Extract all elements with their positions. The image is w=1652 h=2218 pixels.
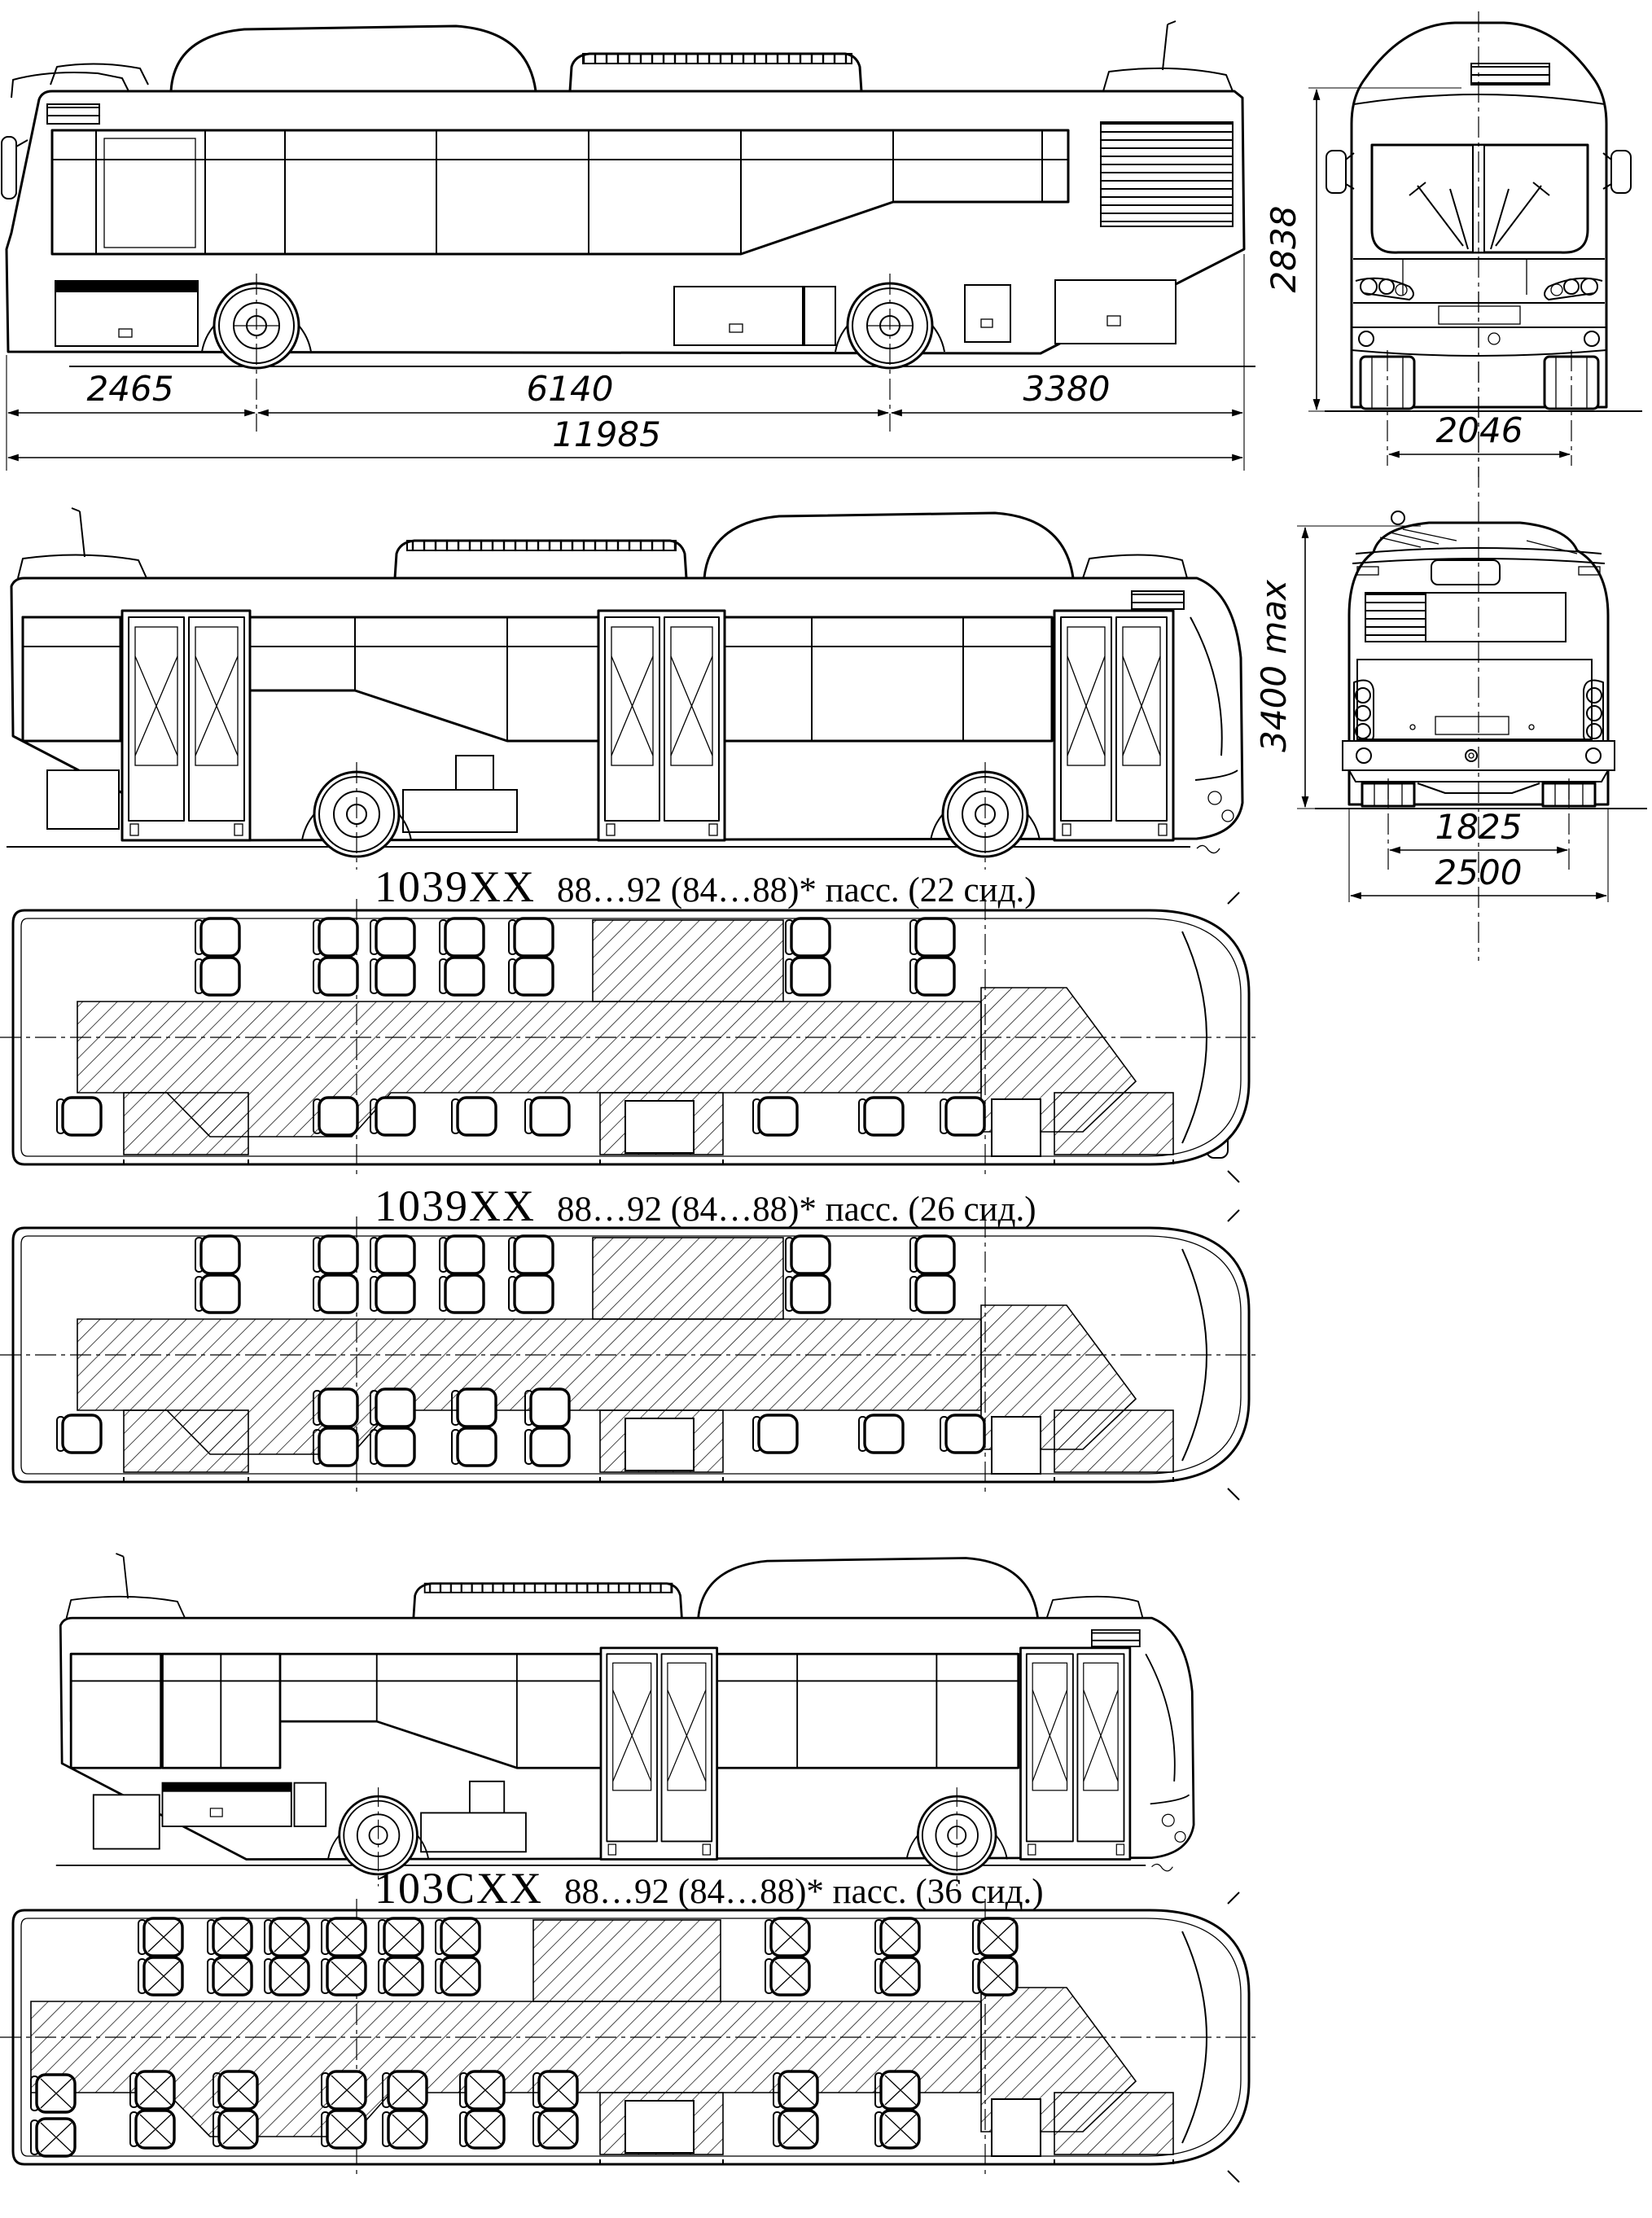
blueprint-sheet: { "sheet_title": "MAZ low-floor city bus… [0, 0, 1652, 2218]
rear-compartment [1055, 280, 1176, 344]
front-view-body [1325, 11, 1642, 477]
floor-plan-22-seats [0, 894, 1258, 1182]
front-door [1054, 611, 1173, 840]
dim-rear-track: 1825 [1435, 807, 1523, 847]
roof-ring [1391, 511, 1404, 524]
dim-overall-length: 11985 [552, 414, 661, 454]
filler-hatch [470, 1782, 504, 1813]
filler-hatch [456, 756, 493, 790]
dim-front-track: 2046 [1436, 410, 1523, 450]
side-view-two-doors [0, 1534, 1258, 1892]
roof-pod-cng [171, 26, 536, 91]
dim-overall-height: 3400 max [1254, 579, 1294, 752]
dim-wheelbase: 6140 [527, 369, 614, 409]
front-roof-fairing [1083, 554, 1187, 578]
floor-plan-26-seats [0, 1212, 1258, 1500]
destination-sign [1471, 64, 1549, 85]
cab-vent-grille [1092, 1630, 1140, 1646]
roof-pod-cng [704, 513, 1073, 578]
front-roof-fairing [1047, 1597, 1143, 1618]
rear-door [122, 611, 250, 840]
side-view-street-side: 2465 6140 3380 11985 [0, 0, 1258, 485]
engine-hatch-upper [1426, 593, 1566, 642]
front-mirror [2, 137, 16, 199]
route-sign [47, 104, 99, 124]
dim-front-overhang: 2465 [87, 369, 174, 409]
dim-rear-overhang: 3380 [1023, 369, 1111, 409]
rear-roof-fairing [1103, 68, 1233, 91]
dim-body-height: 2838 [1264, 206, 1304, 293]
front-view: 2838 2046 [1258, 0, 1652, 485]
engine-vent-grille [1365, 593, 1426, 642]
middle-door [598, 611, 725, 840]
dim-overall-width: 2500 [1435, 853, 1523, 892]
engine-hatch-door [1357, 660, 1592, 739]
break-mark [1197, 845, 1220, 853]
rear-marquee [1431, 560, 1500, 585]
middle-door [601, 1648, 717, 1860]
break-mark [1152, 1864, 1173, 1870]
rear-view: 3400 max 1825 2500 [1258, 479, 1652, 969]
floor-plan-36-seats [0, 1894, 1258, 2218]
left-mirror [1326, 151, 1354, 193]
side-view-door-side [0, 487, 1258, 876]
rear-roof-fairing [67, 1597, 185, 1618]
cab-vent-grille [1132, 591, 1184, 609]
front-door [1020, 1648, 1129, 1860]
engine-grille [1101, 122, 1233, 226]
roof-pod-cng [699, 1558, 1038, 1618]
rear-roof-fairing [18, 554, 147, 578]
